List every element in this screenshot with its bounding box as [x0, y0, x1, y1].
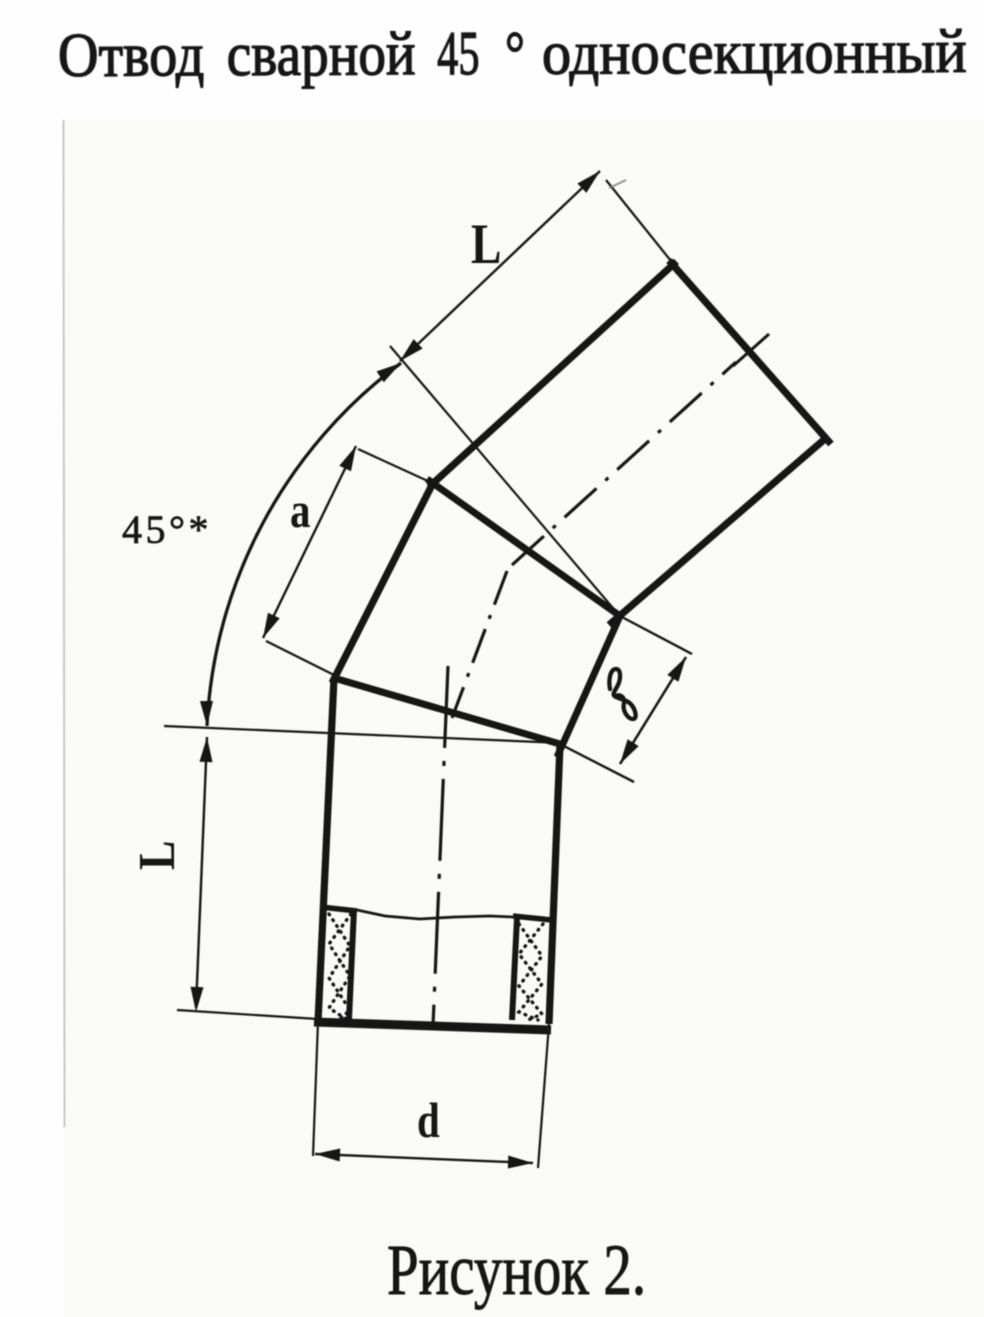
svg-text:L: L: [471, 213, 501, 276]
svg-text:a: a: [290, 482, 311, 538]
svg-text:45°*: 45°*: [122, 507, 212, 552]
svg-text:Отвод: Отвод: [58, 21, 205, 90]
svg-text:односекционный: односекционный: [542, 18, 967, 88]
svg-text:L: L: [129, 841, 186, 870]
svg-text:сварной: сварной: [227, 20, 416, 89]
svg-text:d: d: [417, 1092, 440, 1148]
svg-text:45: 45: [437, 20, 480, 89]
svg-text:°: °: [505, 20, 525, 89]
svg-text:Рисунок 2.: Рисунок 2.: [387, 1231, 646, 1311]
